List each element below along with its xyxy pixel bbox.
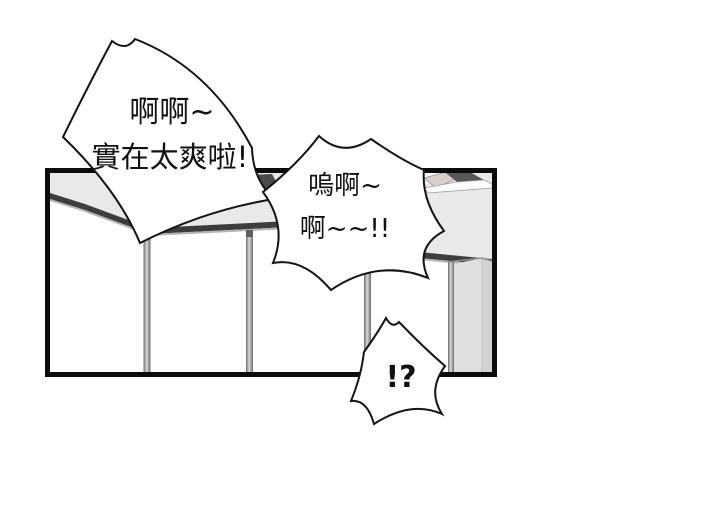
panel-artwork: [0, 0, 720, 509]
wall-post-left: [144, 231, 151, 372]
bubble-2-text-line-2: 啊~~!!: [285, 216, 405, 243]
bubble-2-text-line-1: 嗚啊~: [285, 173, 405, 200]
bubble-3-text: !?: [371, 362, 431, 394]
wall-post-middle: [246, 230, 253, 372]
bubble-1-text-line-1: 啊啊~: [82, 97, 262, 129]
bubble-1-text-line-2: 實在太爽啦!: [60, 142, 280, 172]
wall-column: [448, 258, 492, 372]
comic-page: 啊啊~ 實在太爽啦! 嗚啊~ 啊~~!! !?: [0, 0, 720, 509]
